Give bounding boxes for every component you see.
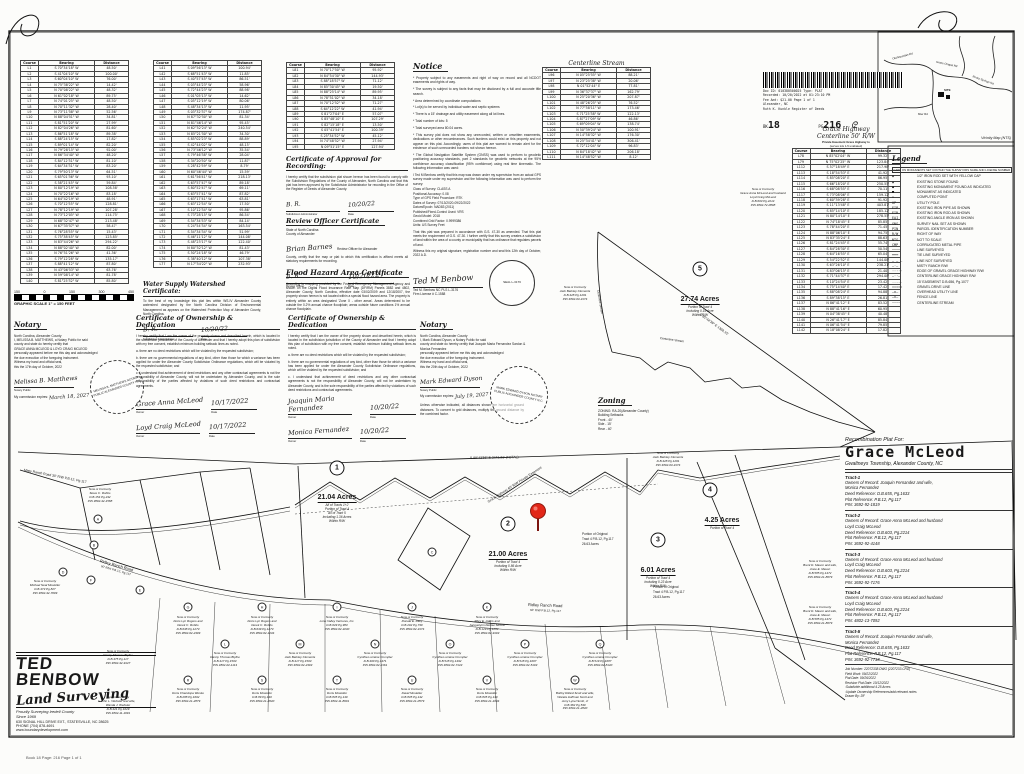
corner-flourish-right <box>918 12 957 32</box>
vicinity-road-label: Rocky Springs Rd <box>972 74 994 85</box>
notary-left: Notary North Carolina, Alexander CountyI… <box>14 314 132 400</box>
tract-entry: Tract-3Owners of Record: Grace Anna McLe… <box>845 552 1013 586</box>
approval-title: Certificate of Approval for Recording: <box>286 156 408 171</box>
title-block: Recombination Plat For: Grace McLeod Gwa… <box>845 437 1013 699</box>
scale-caption: GRAPHIC SCALE 1" = 150 FEET <box>14 301 134 306</box>
ownership-title-1: Certificate of Ownership & Dedication <box>136 315 280 330</box>
grace-highway-table: Grace Highway Centerline 50' R/W Private… <box>788 126 904 339</box>
ownership-signatures-2: Joaquin Maria FernandezOwner10/20/22Date… <box>288 395 416 444</box>
notary-right-signature: Mark Edward Dyson <box>420 375 483 386</box>
legend: Legend CAPS ON MONUMENTS SET CONTAIN THE… <box>892 148 1012 306</box>
firm-website: www.boundarydevelopment.com <box>16 728 156 732</box>
zoning-title: Zoning <box>598 397 632 406</box>
flood-title: Flood Hazard Area Certificate <box>286 269 409 278</box>
ownership-certificate-1: Certificate of Ownership & Dedication I … <box>136 314 280 438</box>
firm-block: TED BENBOW Land Surveying Proudly Survey… <box>16 652 156 732</box>
tract-entry: Tract-4Owners of Record: Grace Anna McLe… <box>845 590 1013 624</box>
approval-body: I hereby certify that the subdivision pl… <box>286 175 408 192</box>
sheet-footer: Book 18 Page: 216 Page 1 of 1 <box>26 755 82 760</box>
review-title: Review Officer Certificate <box>286 218 385 226</box>
vicinity-road-label: Mier Rd <box>918 112 928 116</box>
firm-name-2: BENBOW <box>15 672 157 688</box>
gps-info: Class of Survey: CLASS APositional Accur… <box>413 187 541 227</box>
firm-since: Since 1969 <box>16 714 156 719</box>
notary-right-title: Notary <box>420 321 453 330</box>
ownership-signatures-1: Grace Anna McLeodOwner10/17/2022DateLoyd… <box>136 391 280 439</box>
surveyor-firm-license: Firm License # C-1588 <box>413 292 483 296</box>
notice-section: Notice * Property subject to any easemen… <box>413 56 541 306</box>
surveyor-signature: Ted M Benbow <box>413 273 474 286</box>
firm-script: Land Surveying <box>16 686 130 709</box>
course-table-1: CourseBearingDistanceL1S 70°34'18" W48.5… <box>20 60 129 284</box>
vicinity-caption: Vicinity Map (NTS) <box>981 136 1011 140</box>
graphic-scale: 1500150300450 GRAPHIC SCALE 1" = 150 FEE… <box>14 290 134 306</box>
review-officer-signature: Brian Barnes <box>286 242 333 253</box>
corner-flourish-left <box>6 15 39 44</box>
course-table-3: CourseBearingDistanceL81N 70°17'50" W95.… <box>286 62 395 150</box>
course-table-2: CourseBearingDistanceL41S 09°56'13" W100… <box>153 60 262 268</box>
flood-certificate: Flood Hazard Area Certificate According … <box>286 262 410 312</box>
notary-right: Notary North Carolina, Alexander CountyI… <box>420 314 540 416</box>
plat-title: Grace McLeod <box>845 443 1013 461</box>
centerline-stream-table: Centerline Stream CourseBearingDistanceL… <box>542 60 651 160</box>
legend-title: Legend <box>892 155 927 164</box>
tract-entry: Tract-2Owners of Record: Grace Anna McLe… <box>845 513 1013 547</box>
page-number: 216 <box>823 120 841 131</box>
notary-left-title: Notary <box>14 321 47 330</box>
legend-item: ~~~~CENTERLINE STREAM <box>892 301 1012 306</box>
ownership-certificate-2: Certificate of Ownership & Dedication I … <box>288 314 416 443</box>
stream-table-title: Centerline Stream <box>542 60 651 67</box>
notice-closing1: That this plat was prepared in accordanc… <box>413 230 541 247</box>
flood-body: According to mapping provided by the Fed… <box>286 282 410 312</box>
zoning-section: Zoning ZONING: RA-20(Alexander County)Bu… <box>598 390 649 431</box>
tract-entry: Tract-5Owners of Record: Joaquin Fernand… <box>845 629 1013 663</box>
vicinity-road-label: Old Mountain Rd <box>892 51 913 60</box>
plat-sheet: CourseBearingDistanceL1S 70°34'18" W48.5… <box>0 0 1024 774</box>
vicinity-map: Old Mountain Rd Grace Chapel Rd Rocky Sp… <box>878 32 1014 142</box>
legend-note: CAPS ON MONUMENTS SET CONTAIN THE SURVEY… <box>892 167 1012 173</box>
approval-certificate: Certificate of Approval for Recording: I… <box>286 155 408 216</box>
watershed-title: Water Supply Watershed Certificate: <box>143 282 261 296</box>
job-info: Job Number: 22072338.DWG (2207233.CRD)Fi… <box>845 667 1013 698</box>
vicinity-road-label: Grace Chapel Rd <box>936 60 958 68</box>
book-number: 18 <box>768 120 780 131</box>
notary-left-signature: Melissa B. Matthews <box>14 375 78 386</box>
ownership-title-2: Certificate of Ownership & Dedication <box>288 315 416 330</box>
plat-township: Gwaltneys Township, Alexander County, NC <box>845 461 1013 470</box>
tract-entry: Tract-1Owners of Record: Joaquin Fernand… <box>845 475 1013 509</box>
notice-cert-intro: I Ted M Benbow certify that this map was… <box>413 173 541 186</box>
notice-title: Notice <box>413 62 448 72</box>
notice-closing2: Witness this my original signature, regi… <box>413 249 541 258</box>
vicinity-site-label: SITE <box>944 88 951 92</box>
surveyor-seal: SEAL L-3176 <box>489 260 535 306</box>
